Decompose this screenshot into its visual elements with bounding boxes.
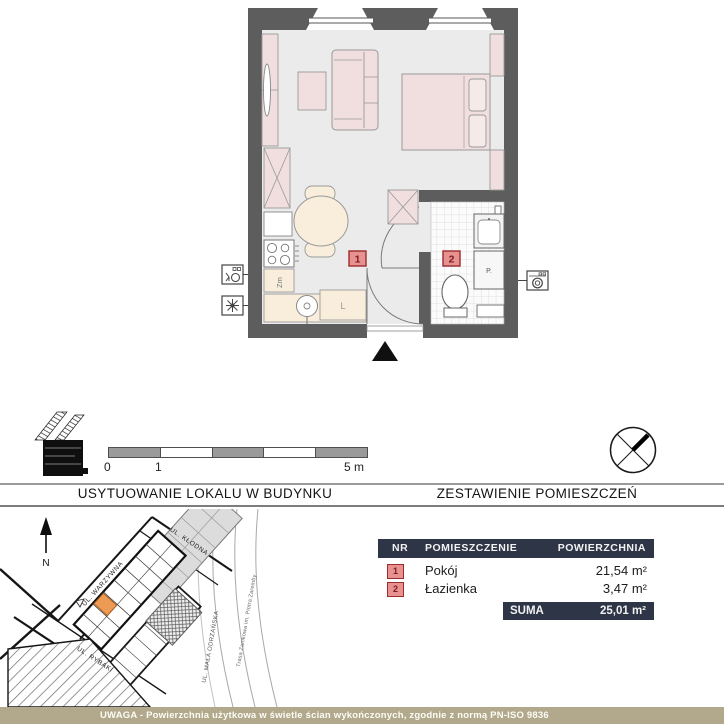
room1-marker: 1 — [355, 254, 361, 266]
suma-row: SUMA 25,01 m² — [503, 602, 654, 620]
scale-bar — [108, 447, 368, 458]
section-title-location: USYTUOWANIE LOKALU W BUDYNKU — [0, 486, 410, 501]
bed-icon — [402, 74, 490, 150]
north-arrow-icon: N — [40, 517, 52, 569]
scale-segment — [161, 448, 213, 457]
stove-icon — [264, 240, 299, 267]
building-thumbnail-icon — [33, 410, 93, 480]
north-compass-icon — [607, 424, 659, 476]
washing-machine-icon: P. — [474, 251, 504, 289]
divider — [0, 483, 724, 485]
site-plan-map: N UL. KŁODNA UL. WARZYWNA UL. RYBAKI UL.… — [0, 509, 300, 707]
scale-tick-0: 0 — [104, 460, 111, 474]
col-header-area: POWIERZCHNIA — [558, 539, 646, 558]
table-row: 2 Łazienka 3,47 m² — [378, 581, 654, 597]
washbasin-icon — [474, 214, 504, 248]
footer-note-text: UWAGA - Powierzchnia użytkowa w świetle … — [100, 707, 549, 724]
ventilation-fan-icon — [222, 296, 243, 315]
rooms-table: NR POMIESZCZENIE POWIERZCHNIA 1 Pokój 21… — [378, 539, 654, 623]
coffee-table-icon — [298, 72, 326, 110]
toilet-icon — [442, 275, 468, 317]
fridge-box — [264, 212, 292, 236]
col-header-name: POMIESZCZENIE — [425, 539, 517, 558]
entrance-threshold — [367, 326, 423, 331]
dishwasher-label: Zm — [275, 277, 284, 288]
sink-icon — [297, 296, 318, 317]
fridge-cabinet: L — [320, 290, 366, 320]
suma-value: 25,01 m² — [600, 602, 646, 620]
divider — [0, 505, 724, 507]
room-area: 21,54 m² — [596, 563, 647, 579]
entrance-arrow-icon — [372, 341, 398, 361]
room2-marker: 2 — [449, 254, 455, 266]
floor-plan: P. — [0, 0, 724, 404]
meter-icon — [222, 265, 243, 284]
scale-segment — [316, 448, 367, 457]
section-title-rooms: ZESTAWIENIE POMIESZCZEŃ — [370, 486, 704, 501]
room-number-badge: 1 — [387, 564, 404, 579]
scale-tick-1: 1 — [155, 460, 162, 474]
north-label: N — [42, 558, 49, 569]
bathroom: P. — [431, 202, 504, 324]
mirror-icon — [264, 64, 271, 116]
sofa-icon — [332, 50, 378, 130]
dishwasher-cabinet: Zm — [264, 269, 294, 292]
table-row: 1 Pokój 21,54 m² — [378, 563, 654, 579]
bathroom-shelf — [477, 305, 504, 317]
street-label-mala-odrzanska: UL. MAŁA ODRZAŃSKA — [201, 610, 221, 683]
scale-segment — [213, 448, 265, 457]
footer-note-bar: UWAGA - Powierzchnia użytkowa w świetle … — [0, 707, 724, 724]
wardrobe-icon — [264, 148, 290, 208]
room-name: Pokój — [425, 563, 458, 579]
scale-segment — [109, 448, 161, 457]
apartment-plan-sheet: P. — [0, 0, 724, 724]
shaft-icon — [388, 190, 418, 224]
room-name: Łazienka — [425, 581, 477, 597]
col-header-nr: NR — [392, 539, 408, 558]
rooms-table-header: NR POMIESZCZENIE POWIERZCHNIA — [378, 539, 654, 558]
scale-segment — [264, 448, 316, 457]
scale-tick-5: 5 m — [344, 460, 364, 474]
washer-symbol-icon — [527, 271, 548, 290]
room-area: 3,47 m² — [603, 581, 647, 597]
washer-label: P. — [486, 268, 492, 275]
room-number-badge: 2 — [387, 582, 404, 597]
fridge-label: L — [340, 301, 345, 311]
suma-label: SUMA — [510, 602, 544, 620]
